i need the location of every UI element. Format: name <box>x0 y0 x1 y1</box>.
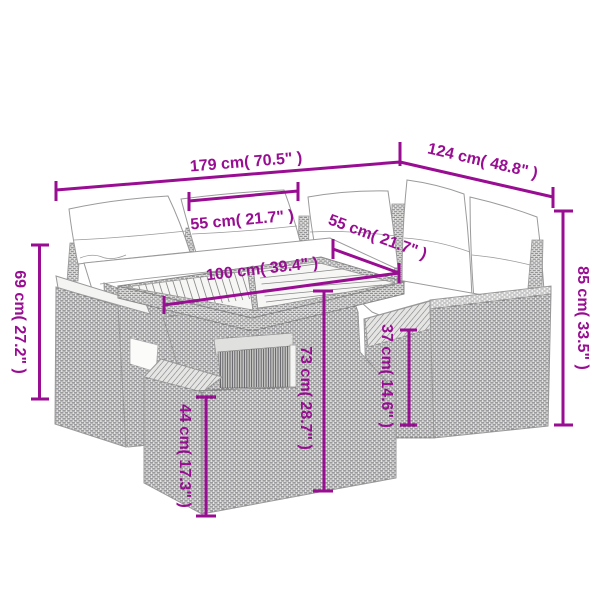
svg-text:85 cm( 33.5" ): 85 cm( 33.5" ) <box>574 266 591 370</box>
svg-text:37 cm( 14.6" ): 37 cm( 14.6" ) <box>378 324 395 428</box>
svg-text:73 cm( 28.7" ): 73 cm( 28.7" ) <box>297 346 314 450</box>
svg-text:69 cm( 27.2" ): 69 cm( 27.2" ) <box>11 270 28 374</box>
svg-text:44 cm( 17.3" ): 44 cm( 17.3" ) <box>176 404 193 508</box>
